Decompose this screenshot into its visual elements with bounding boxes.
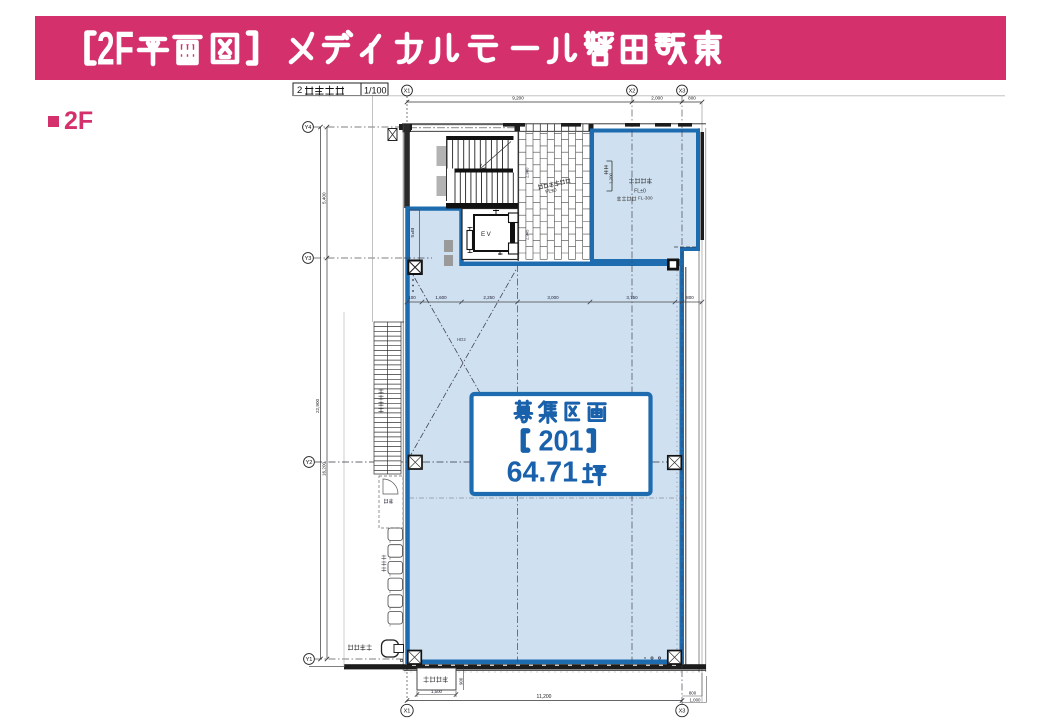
- svg-text:2F: 2F: [64, 107, 93, 135]
- svg-text:22,900: 22,900: [315, 399, 320, 413]
- svg-text:2F: 2F: [97, 22, 134, 75]
- svg-text:FL-300: FL-300: [638, 196, 653, 201]
- svg-text:Y2: Y2: [306, 460, 313, 466]
- svg-text:100: 100: [408, 295, 416, 300]
- svg-text:1,600: 1,600: [435, 295, 447, 300]
- svg-text:FL±0: FL±0: [634, 189, 646, 195]
- svg-text:X2: X2: [629, 88, 636, 94]
- svg-text:2: 2: [297, 85, 302, 96]
- svg-text:5,400: 5,400: [322, 192, 327, 204]
- svg-text:3,000: 3,000: [547, 295, 559, 300]
- svg-text:9,200: 9,200: [512, 96, 524, 101]
- svg-text:1,000: 1,000: [690, 697, 702, 702]
- svg-text:X1: X1: [404, 708, 411, 714]
- svg-text:1/100: 1/100: [364, 86, 387, 96]
- svg-text:1,500: 1,500: [431, 689, 443, 694]
- svg-text:2,945: 2,945: [525, 229, 530, 240]
- svg-text:800: 800: [689, 691, 697, 696]
- svg-text:900: 900: [458, 677, 463, 685]
- svg-text:X3: X3: [679, 708, 686, 714]
- svg-text:16,200: 16,200: [322, 462, 327, 476]
- svg-text:800: 800: [688, 96, 696, 101]
- svg-text:2,000: 2,000: [651, 96, 663, 101]
- svg-text:1,200: 1,200: [609, 172, 614, 184]
- svg-text:11,200: 11,200: [537, 694, 552, 700]
- svg-text:EPS: EPS: [409, 228, 415, 238]
- svg-text:HD2: HD2: [457, 337, 466, 342]
- svg-text:2,900: 2,900: [525, 167, 530, 178]
- svg-text:800: 800: [686, 295, 694, 300]
- svg-text:EV: EV: [481, 231, 492, 238]
- svg-text:3,750: 3,750: [626, 295, 638, 300]
- svg-text:64.71: 64.71: [507, 457, 578, 489]
- svg-text:Y4: Y4: [305, 125, 312, 131]
- svg-text:X1: X1: [404, 88, 411, 94]
- svg-text:Y1: Y1: [306, 657, 313, 663]
- svg-text:201: 201: [539, 426, 584, 458]
- svg-text:X3: X3: [679, 88, 686, 94]
- svg-text:2,250: 2,250: [483, 295, 495, 300]
- svg-text:Y3: Y3: [305, 256, 312, 262]
